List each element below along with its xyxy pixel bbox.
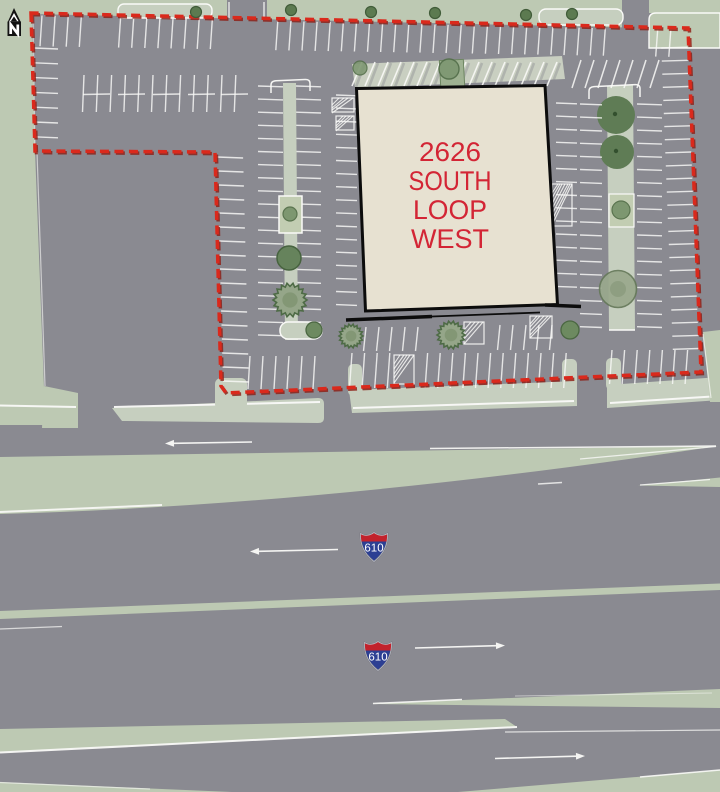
svg-text:LOOP: LOOP <box>413 195 487 225</box>
svg-text:2626: 2626 <box>419 137 481 167</box>
svg-text:WEST: WEST <box>411 224 489 254</box>
svg-text:610: 610 <box>368 652 387 664</box>
svg-text:SOUTH: SOUTH <box>409 166 492 196</box>
svg-text:610: 610 <box>364 543 383 555</box>
